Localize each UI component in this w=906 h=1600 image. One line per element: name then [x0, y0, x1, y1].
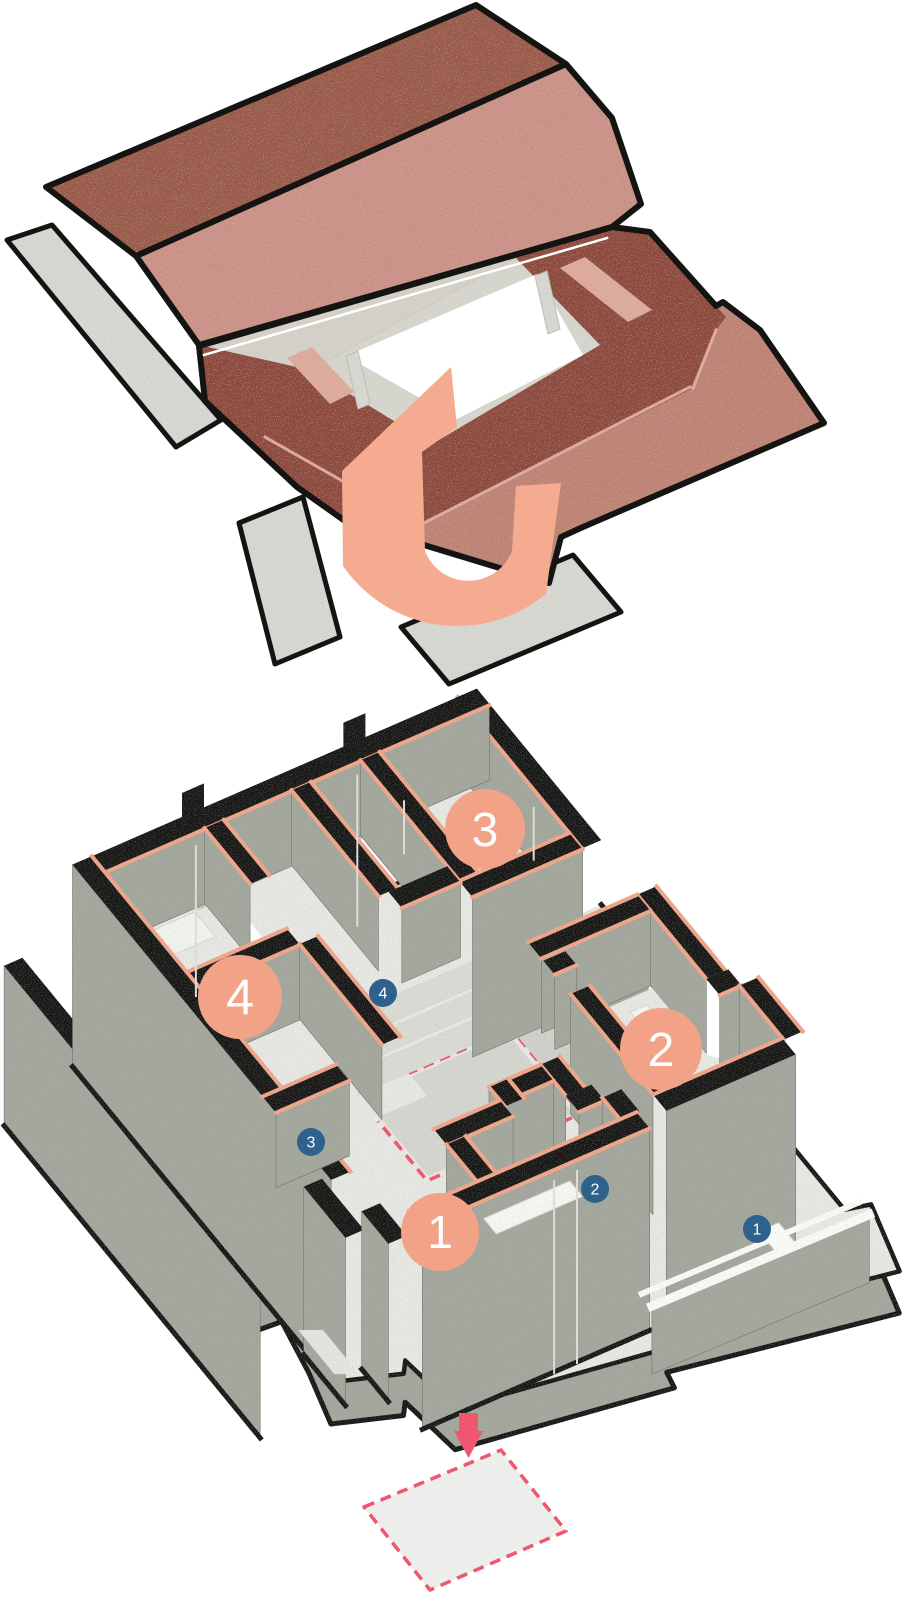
svg-text:4: 4 [379, 986, 388, 1003]
svg-text:2: 2 [591, 1182, 600, 1199]
svg-text:1: 1 [753, 1222, 762, 1239]
svg-text:1: 1 [427, 1206, 453, 1258]
svg-text:3: 3 [472, 804, 499, 857]
svg-text:4: 4 [226, 970, 254, 1026]
svg-text:2: 2 [648, 1024, 675, 1077]
svg-text:3: 3 [307, 1135, 316, 1152]
